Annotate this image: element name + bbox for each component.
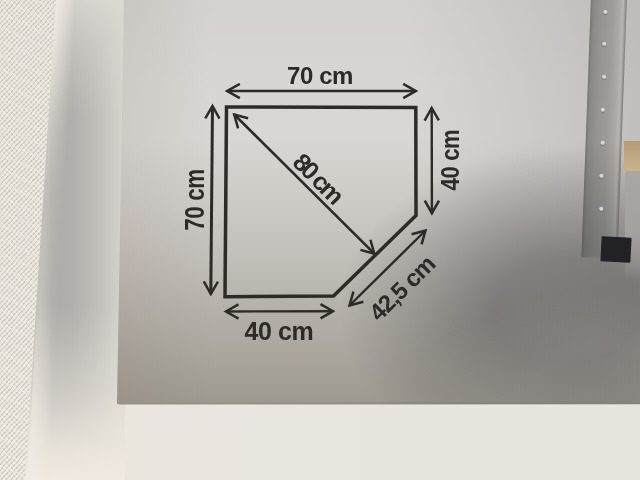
- svg-text:40 cm: 40 cm: [245, 317, 314, 345]
- svg-text:70 cm: 70 cm: [178, 169, 209, 230]
- svg-text:70 cm: 70 cm: [287, 62, 353, 89]
- svg-text:42,5 cm: 42,5 cm: [364, 250, 441, 326]
- svg-text:40 cm: 40 cm: [435, 130, 464, 191]
